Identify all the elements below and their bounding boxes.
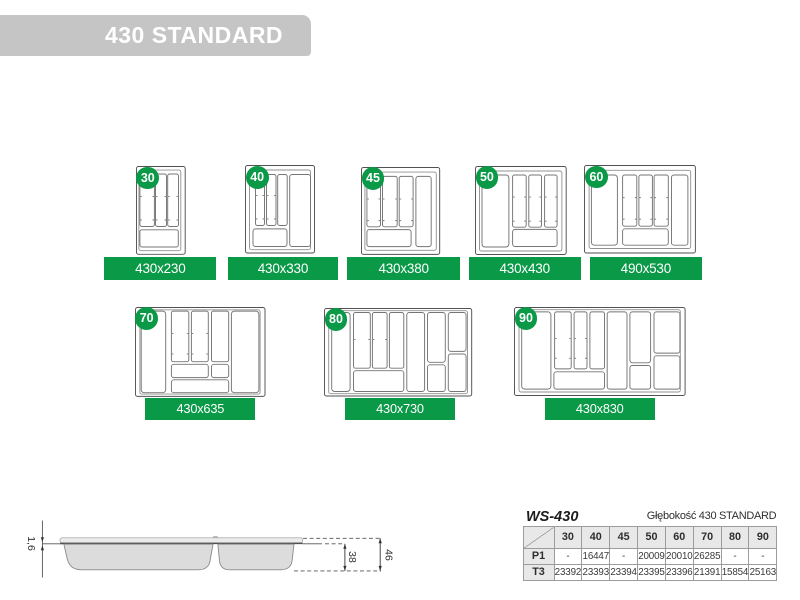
svg-text:1,6: 1,6 [25,536,37,551]
svg-text:46: 46 [383,549,395,561]
svg-text:38: 38 [346,551,358,563]
